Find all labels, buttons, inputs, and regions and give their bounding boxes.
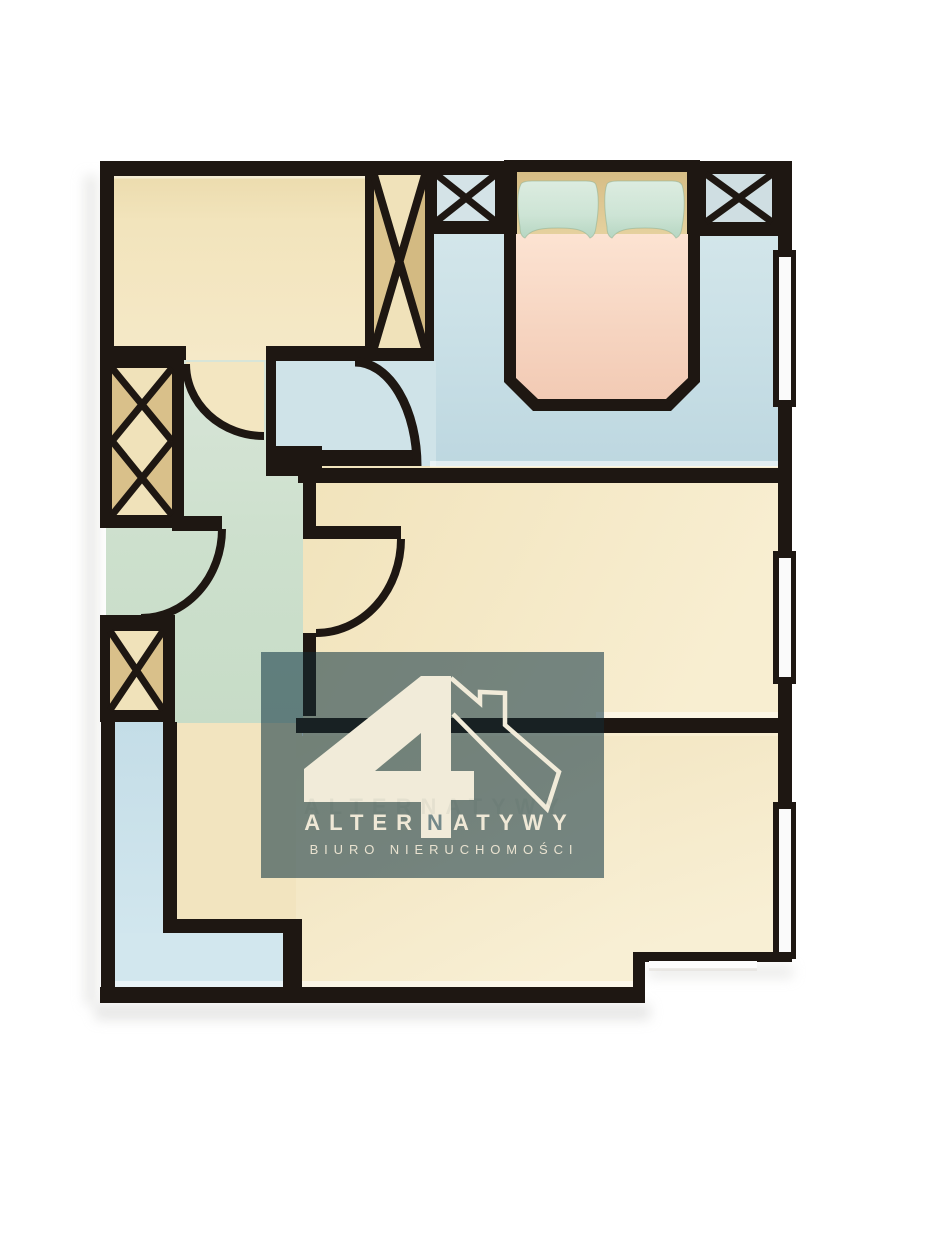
svg-text:N: N bbox=[427, 810, 443, 835]
svg-text:ATYWY: ATYWY bbox=[453, 810, 576, 835]
svg-text:ALTER: ALTER bbox=[304, 810, 421, 835]
svg-text:BIURO NIERUCHOMOŚCI: BIURO NIERUCHOMOŚCI bbox=[310, 842, 579, 857]
